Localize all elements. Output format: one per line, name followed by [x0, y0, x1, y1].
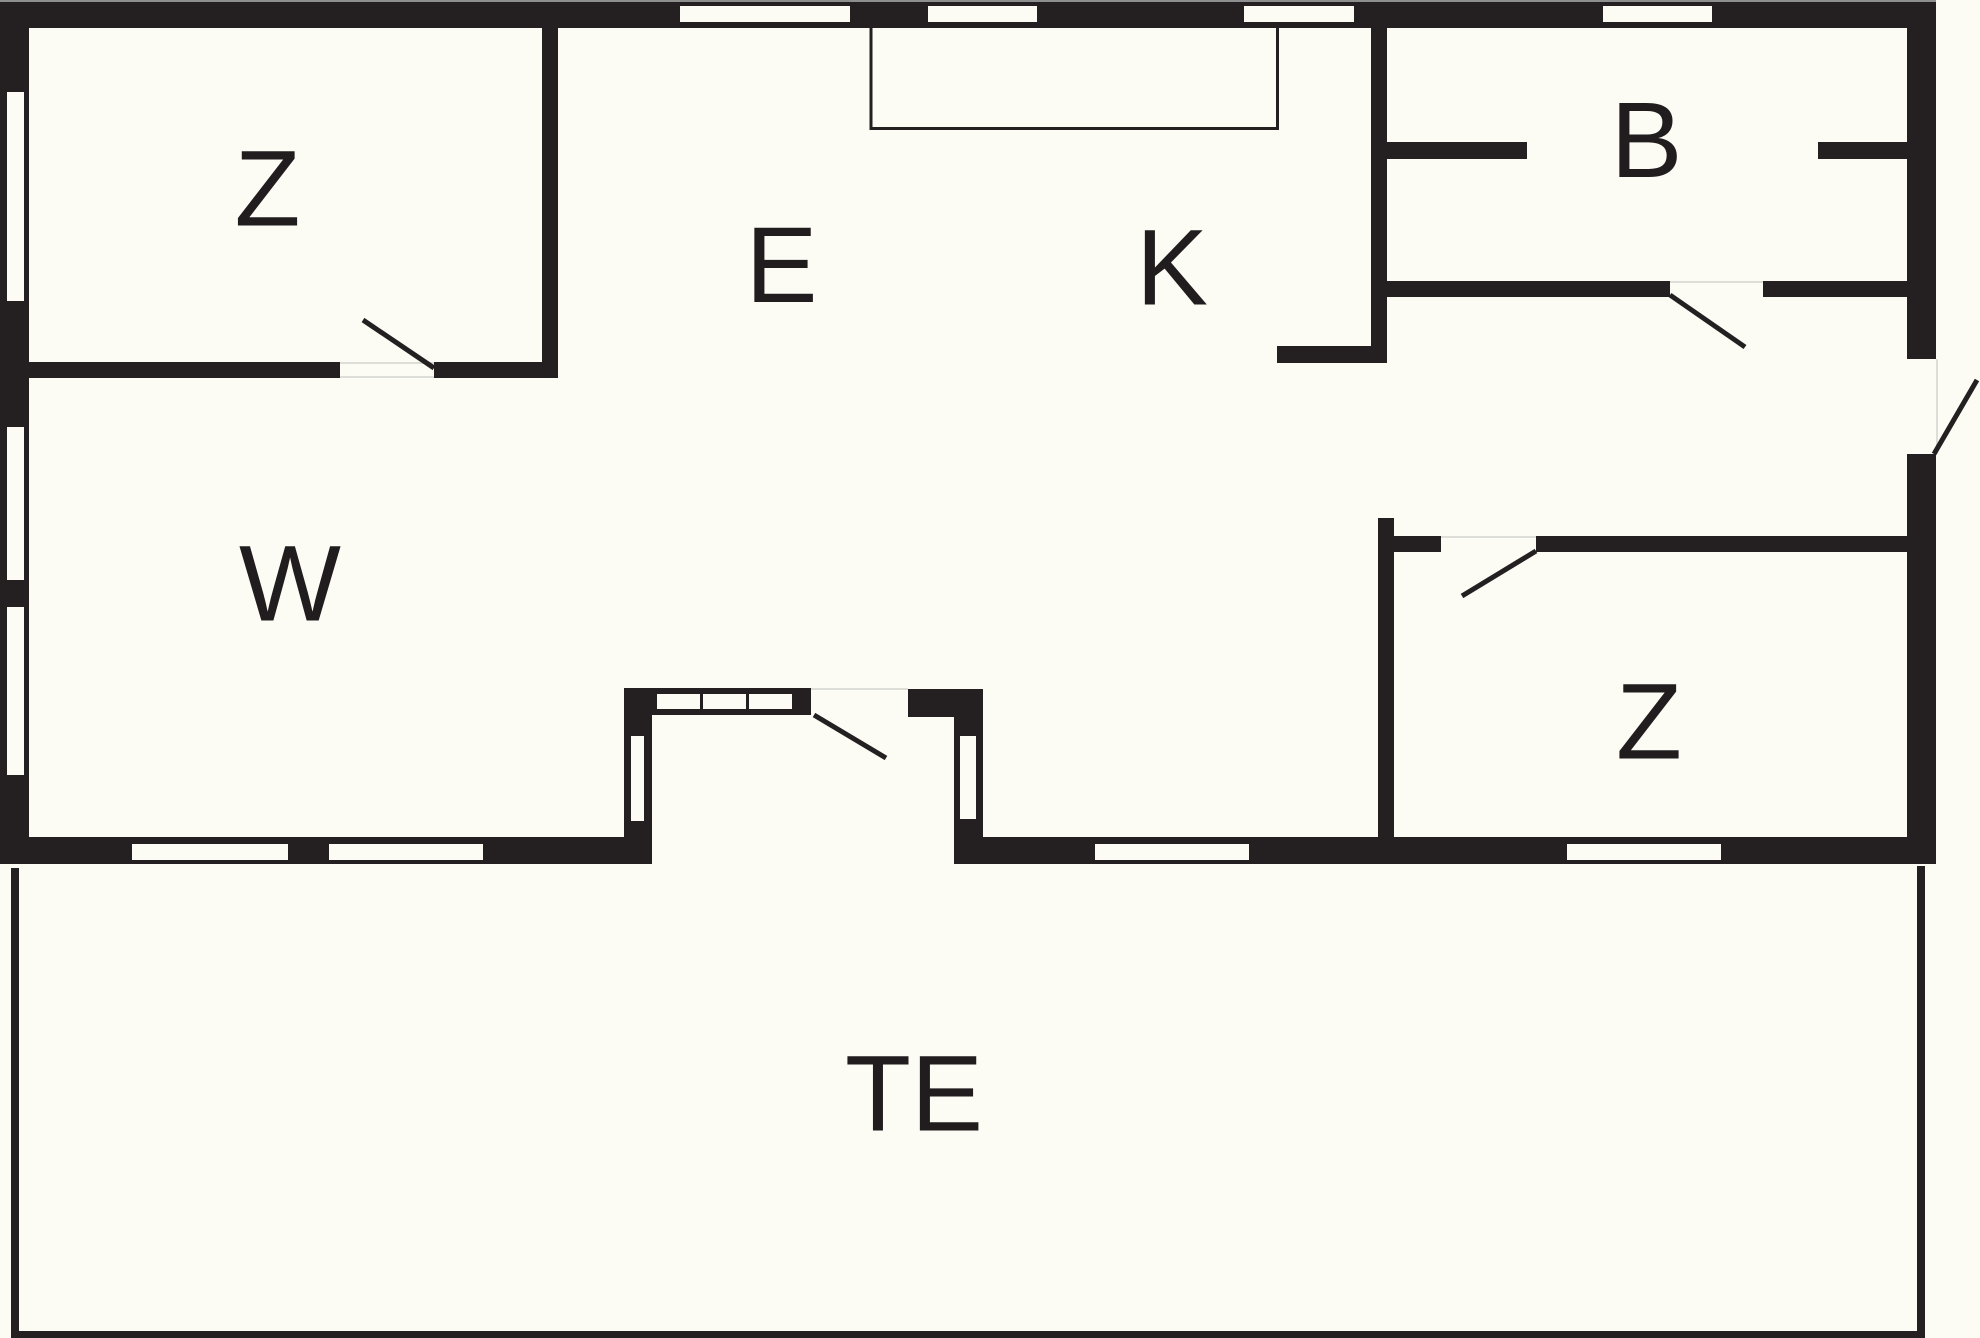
- svg-text:Z: Z: [235, 128, 301, 249]
- svg-text:B: B: [1610, 79, 1682, 200]
- svg-text:Z: Z: [1616, 661, 1682, 782]
- svg-text:K: K: [1136, 207, 1208, 328]
- svg-text:TE: TE: [845, 1033, 983, 1154]
- svg-text:E: E: [745, 204, 817, 325]
- svg-text:W: W: [239, 523, 341, 644]
